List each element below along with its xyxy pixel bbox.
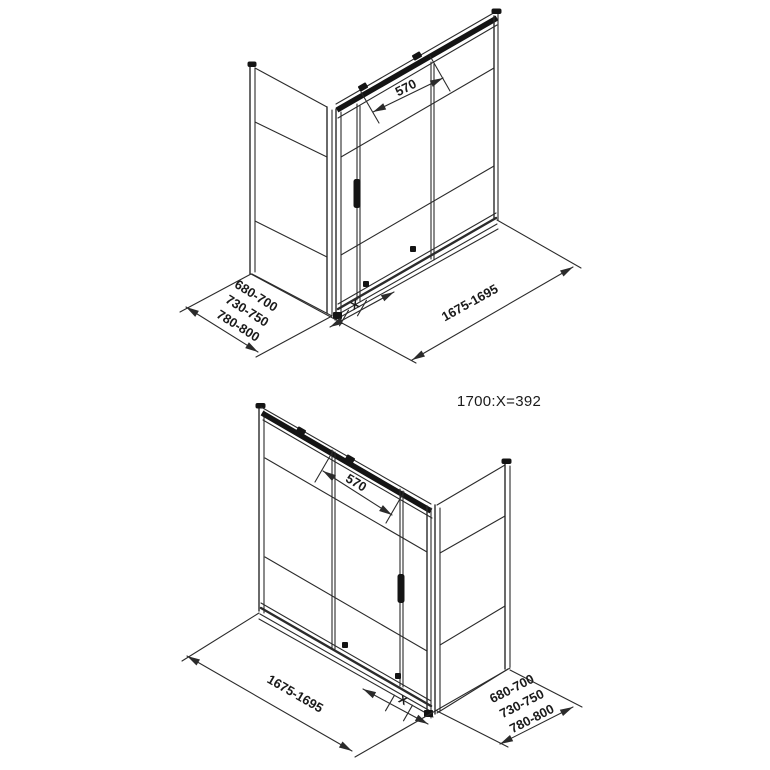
door-handle <box>398 574 405 603</box>
arrowhead <box>323 471 336 481</box>
total-width-label: 1675-1695 <box>265 672 326 716</box>
arrowhead <box>339 742 352 752</box>
track-end-foot <box>333 312 342 319</box>
arrowhead <box>245 342 258 352</box>
bottom-isometric-drawing: 570 1675-1695 X 680-700 730-750 780-80 <box>182 403 582 757</box>
panel-divider <box>431 62 434 260</box>
top-rail-lower-edge <box>263 420 432 518</box>
guide-foot <box>395 673 401 679</box>
arrowhead <box>560 267 573 277</box>
arrowhead <box>430 78 443 87</box>
side-panel <box>435 459 512 715</box>
door-handle <box>354 179 361 208</box>
door-width-label: 570 <box>393 76 419 99</box>
arrowhead <box>500 735 513 744</box>
door-right-post-cap <box>492 9 502 15</box>
sliding-door-assembly <box>256 403 434 718</box>
side-panel-top-edge <box>437 465 505 505</box>
guide-foot <box>342 642 348 648</box>
arrowhead <box>187 656 200 666</box>
side-panel-glass-bands <box>440 516 505 645</box>
side-panel-top-edge <box>255 68 327 107</box>
technical-drawing-page: 570 1675-1695 X 680-700 730-750 780-80 <box>0 0 770 770</box>
total-width-label: 1675-1695 <box>439 281 501 324</box>
top-isometric-drawing: 570 1675-1695 X 680-700 730-750 780-80 <box>180 9 581 364</box>
side-panel-post-cap <box>502 459 512 465</box>
dimension-depth-options: 680-700 730-750 780-800 <box>437 670 582 747</box>
arrowhead <box>363 689 376 698</box>
top-rail-lower-edge <box>338 25 497 118</box>
arrowhead <box>373 103 386 112</box>
arrowhead <box>560 707 573 716</box>
bath-screen-installation-diagram: 570 1675-1695 X 680-700 730-750 780-80 <box>0 0 770 770</box>
side-panel <box>248 62 333 317</box>
bottom-rail-upper-edge <box>338 213 496 304</box>
top-rail <box>262 413 431 511</box>
extension-lines <box>182 613 510 757</box>
door-left-post-cap <box>256 403 266 409</box>
dimension-adjustment: X <box>330 292 394 327</box>
guide-foot <box>410 246 416 252</box>
dimension-depth-options: 680-700 730-750 780-800 <box>180 274 332 357</box>
top-rail <box>337 18 497 110</box>
arrowhead <box>186 307 199 317</box>
bottom-track-outer-edge <box>259 619 433 717</box>
side-panel-post-cap <box>248 62 257 68</box>
arrowhead <box>379 505 392 515</box>
sliding-door-assembly <box>333 9 502 321</box>
top-rail-upper-edge <box>261 407 431 504</box>
formula-label: 1700:X=392 <box>457 393 541 410</box>
arrowhead <box>412 351 425 361</box>
dimension-total-width: 1675-1695 <box>251 220 581 363</box>
dimension-total-width: 1675-1695 <box>182 613 510 757</box>
dimension-line <box>187 656 352 751</box>
adjustment-label: X <box>396 692 410 708</box>
guide-foot <box>363 281 369 287</box>
side-panel-glass-bands <box>255 122 327 257</box>
